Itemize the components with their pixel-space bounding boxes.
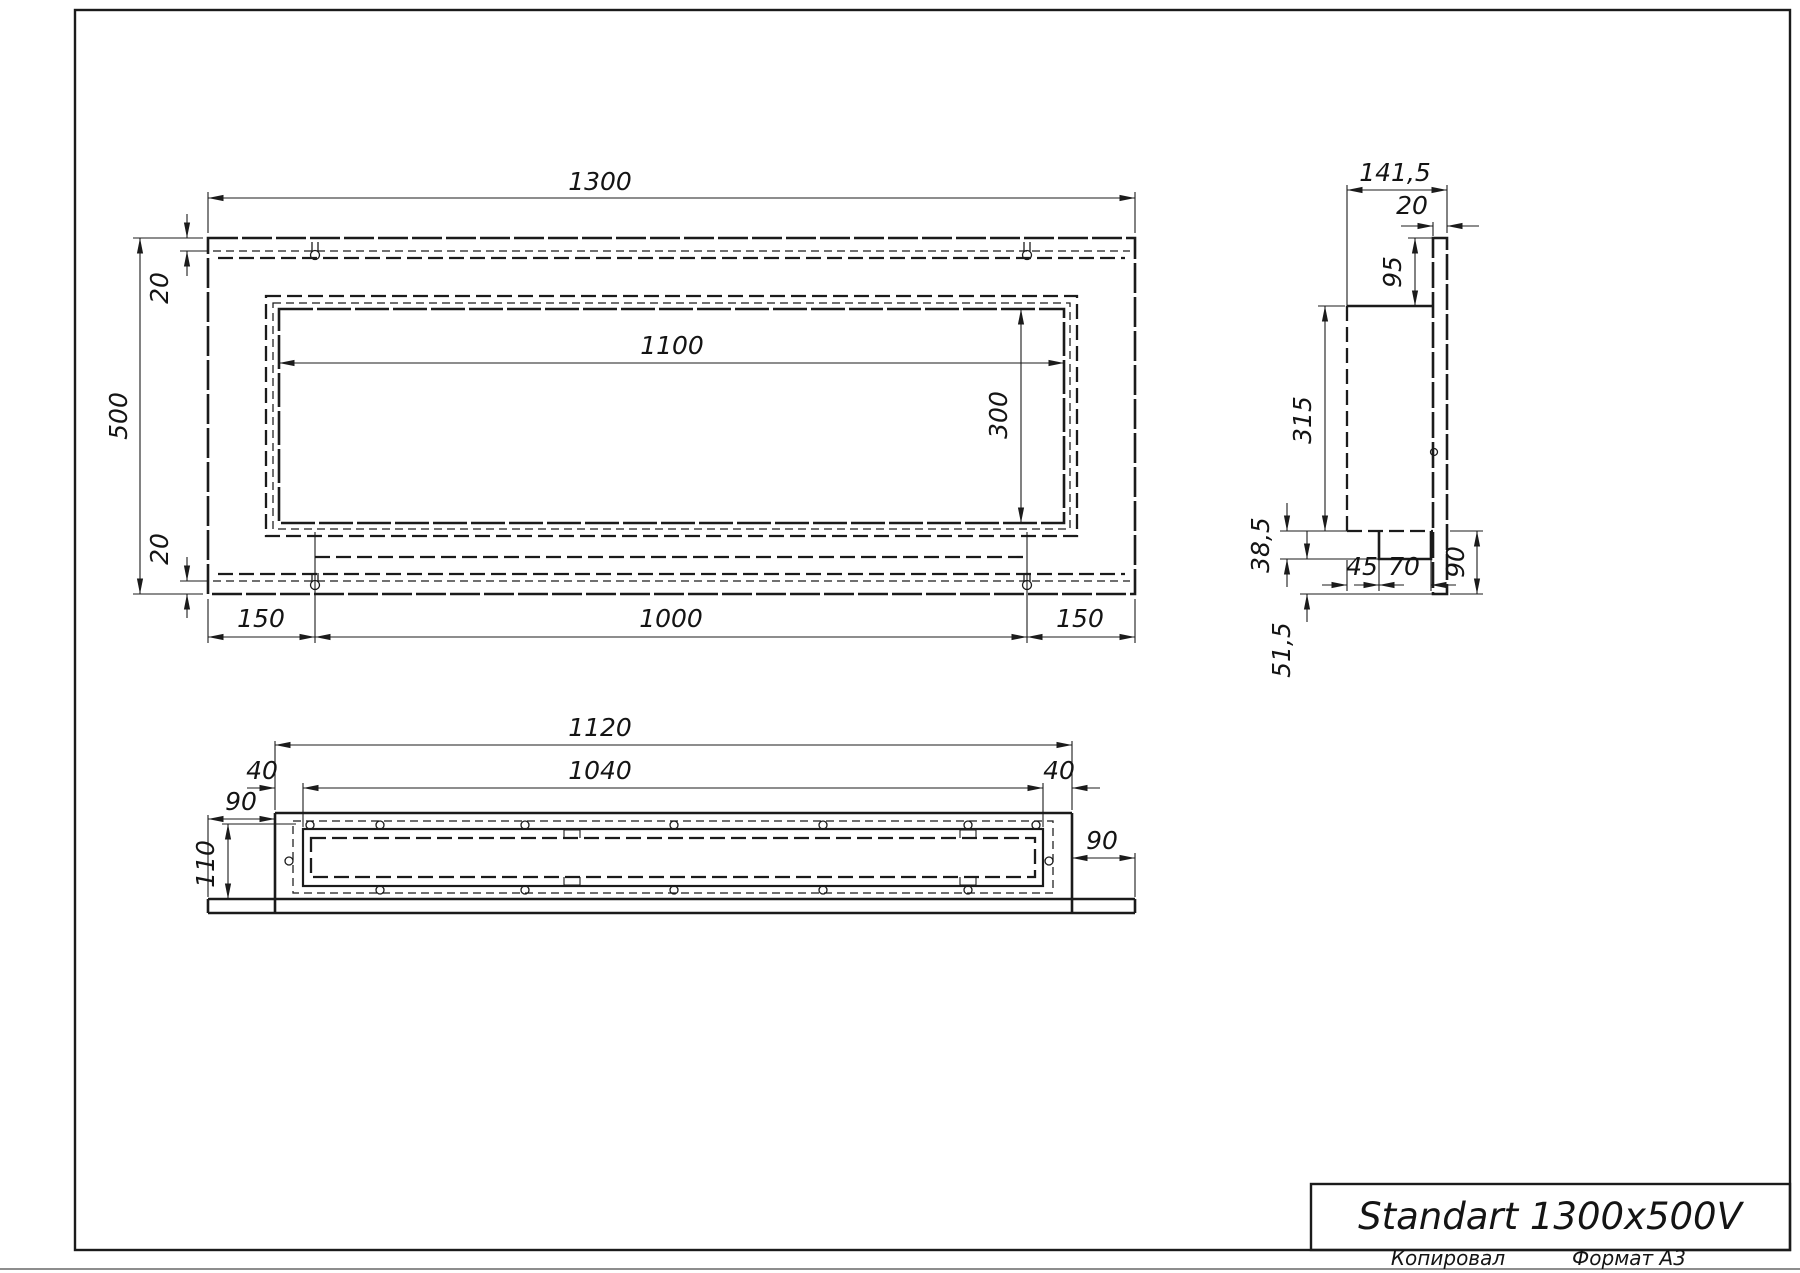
drawing-canvas: 1300 500 20 20 1100 <box>0 0 1800 1273</box>
dim-bottom-overhang-right: 90 <box>1072 826 1135 897</box>
bottom-notch-top-2 <box>960 830 976 838</box>
dim-label-51-5: 51,5 <box>1267 622 1296 678</box>
product-title: Standart 1300x500V <box>1358 1195 1744 1238</box>
dim-label-90-left: 90 <box>225 787 257 816</box>
side-front-panel <box>1433 238 1447 594</box>
dim-label-315: 315 <box>1288 396 1317 444</box>
bottom-hidden-frame-inner <box>311 838 1035 877</box>
dim-bottom-inner-depth: 110 <box>191 824 296 899</box>
bottom-hidden-frame-outer <box>293 821 1053 893</box>
dim-label-110: 110 <box>191 840 220 888</box>
dim-label-1000: 1000 <box>639 604 703 633</box>
dim-bottom-inner-width: 1040 40 40 <box>246 756 1100 827</box>
dim-label-38-5: 38,5 <box>1246 517 1275 573</box>
dim-label-90-side: 90 <box>1441 546 1470 578</box>
dim-front-flange-bottom: 20 <box>145 533 209 618</box>
front-view: 1300 500 20 20 1100 <box>104 167 1135 643</box>
dim-label-20-panel: 20 <box>1396 191 1428 220</box>
dim-label-70: 70 <box>1388 552 1420 581</box>
dim-front-opening-width: 1100 <box>279 331 1064 363</box>
dim-label-150-right: 150 <box>1056 604 1104 633</box>
dim-front-opening-height: 300 <box>984 309 1021 523</box>
dim-label-45: 45 <box>1346 552 1378 581</box>
drawing-frame <box>0 10 1800 1269</box>
dim-label-20-bottom: 20 <box>145 533 174 565</box>
dim-label-300: 300 <box>984 391 1013 439</box>
dim-label-500: 500 <box>104 392 133 440</box>
dim-label-150-left: 150 <box>237 604 285 633</box>
bottom-notch-bottom-1 <box>564 877 580 885</box>
dim-label-40-left: 40 <box>246 756 278 785</box>
dim-label-95: 95 <box>1378 256 1407 288</box>
dim-label-141-5: 141,5 <box>1359 158 1431 187</box>
copied-label: Копировал <box>1391 1246 1505 1270</box>
format-label: Формат А3 <box>1572 1246 1686 1270</box>
dim-side-panel-thickness: 20 <box>1396 191 1479 236</box>
side-view: 141,5 20 95 315 38,5 <box>1246 158 1483 678</box>
frame-border <box>75 10 1790 1250</box>
bottom-notch-top-1 <box>564 830 580 838</box>
bottom-screw-holes <box>285 821 1053 894</box>
dim-label-1040: 1040 <box>568 756 632 785</box>
dim-side-box-height: 315 <box>1288 306 1345 531</box>
dim-label-20-top: 20 <box>145 272 174 304</box>
dim-side-tray-position: 45 70 <box>1322 552 1456 591</box>
dim-label-1100: 1100 <box>640 331 704 360</box>
dim-side-top-offset: 95 <box>1378 238 1433 306</box>
bottom-notch-bottom-2 <box>960 877 976 885</box>
dim-front-flange-top: 20 <box>145 214 209 304</box>
bottom-view: 1120 1040 40 40 90 110 90 <box>191 713 1135 913</box>
dim-label-40-right: 40 <box>1043 756 1075 785</box>
dim-label-1120: 1120 <box>568 713 632 742</box>
title-block: Standart 1300x500V Копировал Формат А3 <box>1311 1184 1790 1270</box>
dim-label-90-right: 90 <box>1086 826 1118 855</box>
dim-front-overall-width: 1300 <box>208 167 1135 233</box>
dim-label-1300: 1300 <box>568 167 632 196</box>
drawing-sheet: 1300 500 20 20 1100 <box>0 0 1800 1273</box>
dim-front-hole-spacing: 150 1000 150 <box>208 532 1135 643</box>
dim-bottom-box-width: 1120 <box>275 713 1072 810</box>
